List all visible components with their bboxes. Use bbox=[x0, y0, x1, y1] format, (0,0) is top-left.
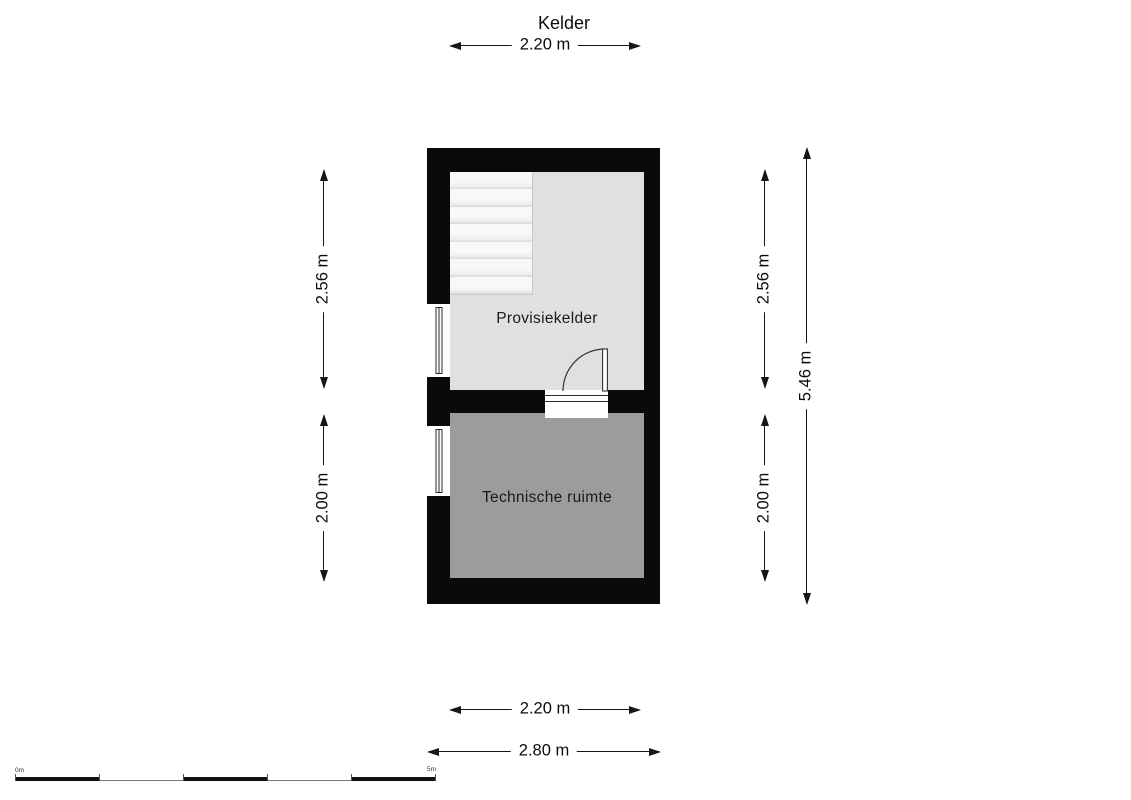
dimension-label: 2.56 m bbox=[755, 246, 774, 312]
dimension-left-upper: 2.56 m bbox=[317, 170, 330, 388]
arrow-left-icon bbox=[449, 42, 461, 50]
stair-step bbox=[450, 224, 532, 241]
dimension-top-width: 2.20 m bbox=[450, 39, 640, 52]
arrow-right-icon bbox=[629, 42, 641, 50]
arrow-right-icon bbox=[629, 706, 641, 714]
page-title: Kelder bbox=[464, 13, 664, 34]
staircase bbox=[450, 172, 533, 295]
dimension-label: 2.00 m bbox=[314, 465, 333, 531]
dimension-bottom-outer: 2.80 m bbox=[428, 745, 660, 758]
dimension-right-upper: 2.56 m bbox=[758, 170, 771, 388]
scalebar-segment bbox=[183, 777, 267, 781]
dimension-label: 2.20 m bbox=[512, 36, 578, 55]
arrow-left-icon bbox=[427, 748, 439, 756]
scalebar-start-label: 0m bbox=[15, 768, 24, 775]
arrow-down-icon bbox=[320, 377, 328, 389]
dimension-bottom-inner: 2.20 m bbox=[450, 703, 640, 716]
arrow-up-icon bbox=[761, 169, 769, 181]
scalebar-segment bbox=[268, 777, 352, 781]
dimension-label: 2.00 m bbox=[755, 465, 774, 531]
scalebar-tick bbox=[99, 774, 100, 781]
arrow-down-icon bbox=[761, 377, 769, 389]
arrow-down-icon bbox=[320, 570, 328, 582]
stair-step bbox=[450, 172, 532, 189]
door-swing-icon bbox=[540, 347, 612, 393]
door-opening bbox=[545, 390, 608, 418]
window bbox=[427, 303, 450, 378]
scalebar-tick bbox=[183, 774, 184, 781]
stair-step bbox=[450, 242, 532, 259]
scalebar-tick bbox=[267, 774, 268, 781]
scalebar-tick bbox=[15, 774, 16, 781]
scale-bar bbox=[15, 777, 436, 781]
scalebar-end-label: 5m bbox=[427, 767, 436, 774]
dimension-label: 2.56 m bbox=[314, 246, 333, 312]
floorplan-canvas: Kelder 2.20 m Provisiekelder Technis bbox=[0, 0, 1131, 800]
stair-step bbox=[450, 189, 532, 206]
door-track-line bbox=[545, 401, 608, 402]
scalebar-segment bbox=[15, 777, 99, 781]
arrow-left-icon bbox=[449, 706, 461, 714]
scalebar-segment bbox=[352, 777, 436, 781]
dimension-label: 2.20 m bbox=[512, 700, 578, 719]
dimension-left-lower: 2.00 m bbox=[317, 415, 330, 581]
dimension-label: 2.80 m bbox=[511, 742, 577, 761]
arrow-up-icon bbox=[320, 414, 328, 426]
window bbox=[427, 425, 450, 497]
window-glazing-icon bbox=[435, 307, 442, 374]
arrow-down-icon bbox=[761, 570, 769, 582]
room-label-technische-ruimte: Technische ruimte bbox=[450, 489, 644, 507]
scalebar-segment bbox=[99, 777, 183, 781]
arrow-right-icon bbox=[649, 748, 661, 756]
arrow-up-icon bbox=[320, 169, 328, 181]
stair-step bbox=[450, 259, 532, 276]
arrow-up-icon bbox=[803, 147, 811, 159]
arrow-down-icon bbox=[803, 593, 811, 605]
scalebar-tick bbox=[351, 774, 352, 781]
scalebar-tick bbox=[435, 774, 436, 781]
dimension-right-total: 5.46 m bbox=[800, 148, 813, 604]
door-track-line bbox=[545, 395, 608, 396]
arrow-up-icon bbox=[761, 414, 769, 426]
dimension-label: 5.46 m bbox=[797, 343, 816, 409]
stair-step bbox=[450, 207, 532, 224]
window-glazing-icon bbox=[435, 429, 442, 493]
dimension-right-lower: 2.00 m bbox=[758, 415, 771, 581]
stair-step bbox=[450, 277, 532, 294]
room-label-provisiekelder: Provisiekelder bbox=[450, 310, 644, 328]
